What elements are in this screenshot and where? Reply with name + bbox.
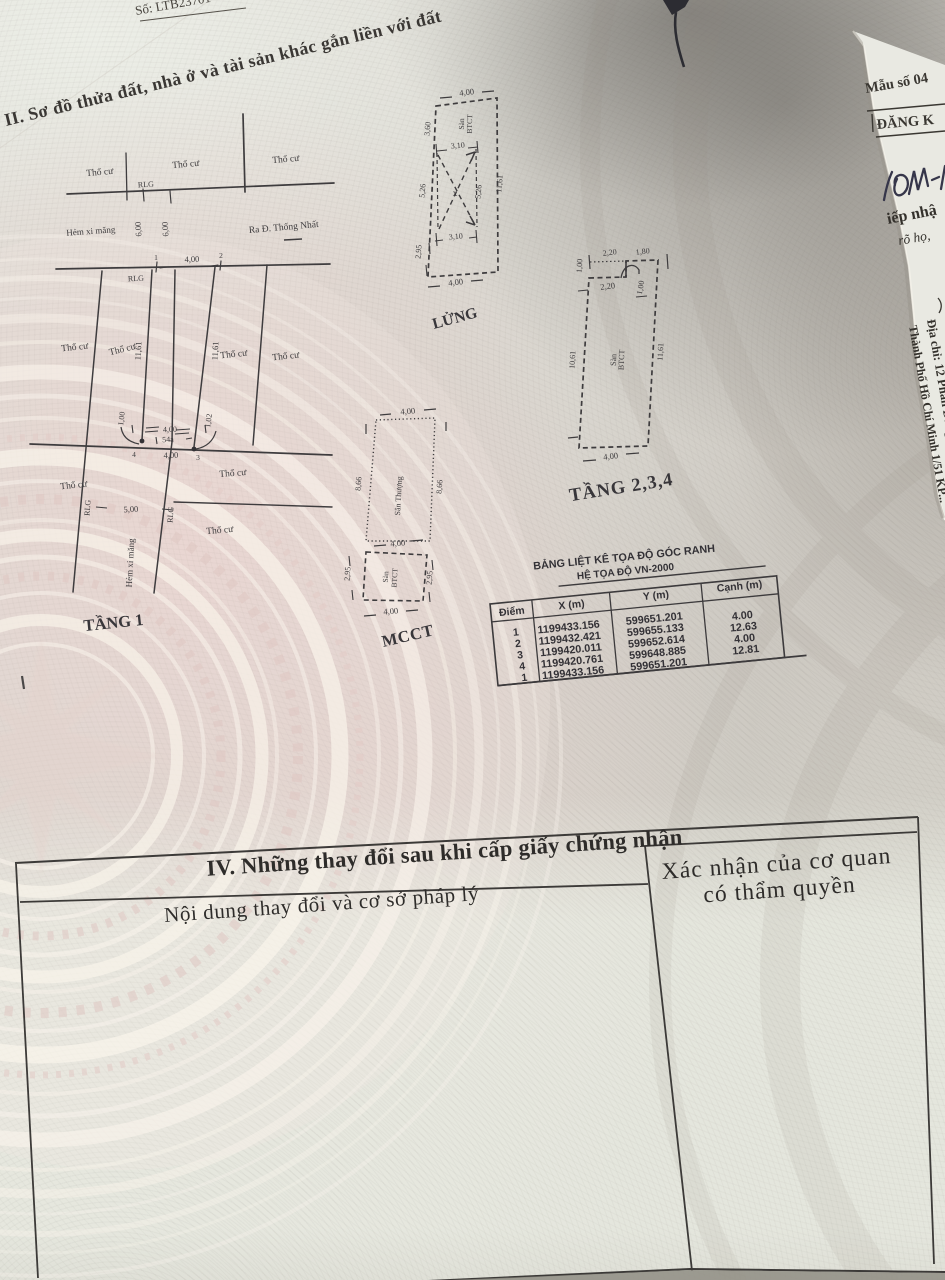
svg-text:BTCT: BTCT [465,114,474,134]
svg-text:2,95: 2,95 [413,244,423,259]
svg-text:RLG: RLG [128,274,145,284]
svg-text:1,00: 1,00 [575,259,585,273]
svg-text:8,66: 8,66 [354,477,364,492]
svg-text:4,00: 4,00 [163,450,178,461]
svg-text:Thổ cư: Thổ cư [219,467,248,480]
svg-text:1: 1 [154,253,158,262]
svg-text:10,61: 10,61 [568,351,578,369]
svg-text:RLG: RLG [138,179,155,189]
svg-text:3,10: 3,10 [448,231,463,241]
svg-text:5,26: 5,26 [417,183,427,198]
svg-text:2,20: 2,20 [600,280,616,292]
svg-text:Thổ cư: Thổ cư [86,166,115,179]
svg-text:4: 4 [132,450,136,459]
svg-text:6,00: 6,00 [133,221,144,237]
svg-text:RLG: RLG [165,506,175,523]
svg-text:2,20: 2,20 [602,247,617,258]
svg-text:2: 2 [219,251,223,260]
svg-text:11,61: 11,61 [494,175,505,193]
svg-text:X (m): X (m) [558,598,585,613]
svg-text:4,00: 4,00 [448,276,464,288]
svg-text:4,00: 4,00 [603,450,619,462]
svg-text:4,00: 4,00 [383,605,399,616]
svg-text:4,00: 4,00 [400,405,416,416]
svg-text:4,00: 4,00 [390,537,406,548]
svg-text:Số: LTB23701: Số: LTB23701 [134,0,212,18]
svg-text:Thổ cư: Thổ cư [172,158,201,171]
svg-text:Điểm: Điểm [499,605,526,619]
svg-text:Y (m): Y (m) [642,589,669,603]
svg-text:6,00: 6,00 [160,221,171,237]
svg-text:BTCT: BTCT [390,568,400,588]
svg-text:11,61: 11,61 [656,343,666,361]
svg-text:8,66: 8,66 [435,480,445,495]
svg-text:1,00: 1,00 [635,280,646,295]
svg-text:4,00: 4,00 [459,86,475,98]
svg-text:TẦNG 2,3,4: TẦNG 2,3,4 [568,468,675,506]
svg-text:4,00: 4,00 [163,425,177,434]
svg-text:LỬNG: LỬNG [430,304,479,332]
svg-text:5,00: 5,00 [123,504,138,515]
svg-text:5,26: 5,26 [473,184,483,199]
svg-text:Thổ cư: Thổ cư [272,153,301,166]
svg-text:3,10: 3,10 [450,140,465,150]
svg-text:3: 3 [196,453,200,462]
svg-text:54a: 54a [162,435,174,444]
svg-text:x: x [453,188,458,198]
svg-text:BTCT: BTCT [617,349,627,370]
svg-text:II. Sơ đồ thửa đất, nhà ở và t: II. Sơ đồ thửa đất, nhà ở và tài sản khá… [2,6,443,130]
svg-text:3,60: 3,60 [422,121,432,136]
svg-text:1,80: 1,80 [635,246,650,257]
svg-text:2,95: 2,95 [425,571,435,586]
svg-text:4,00: 4,00 [184,254,199,265]
svg-text:Ra Đ. Thống Nhất: Ra Đ. Thống Nhất [248,219,319,236]
svg-text:2,95: 2,95 [343,567,353,582]
svg-text:RLG: RLG [82,499,92,516]
